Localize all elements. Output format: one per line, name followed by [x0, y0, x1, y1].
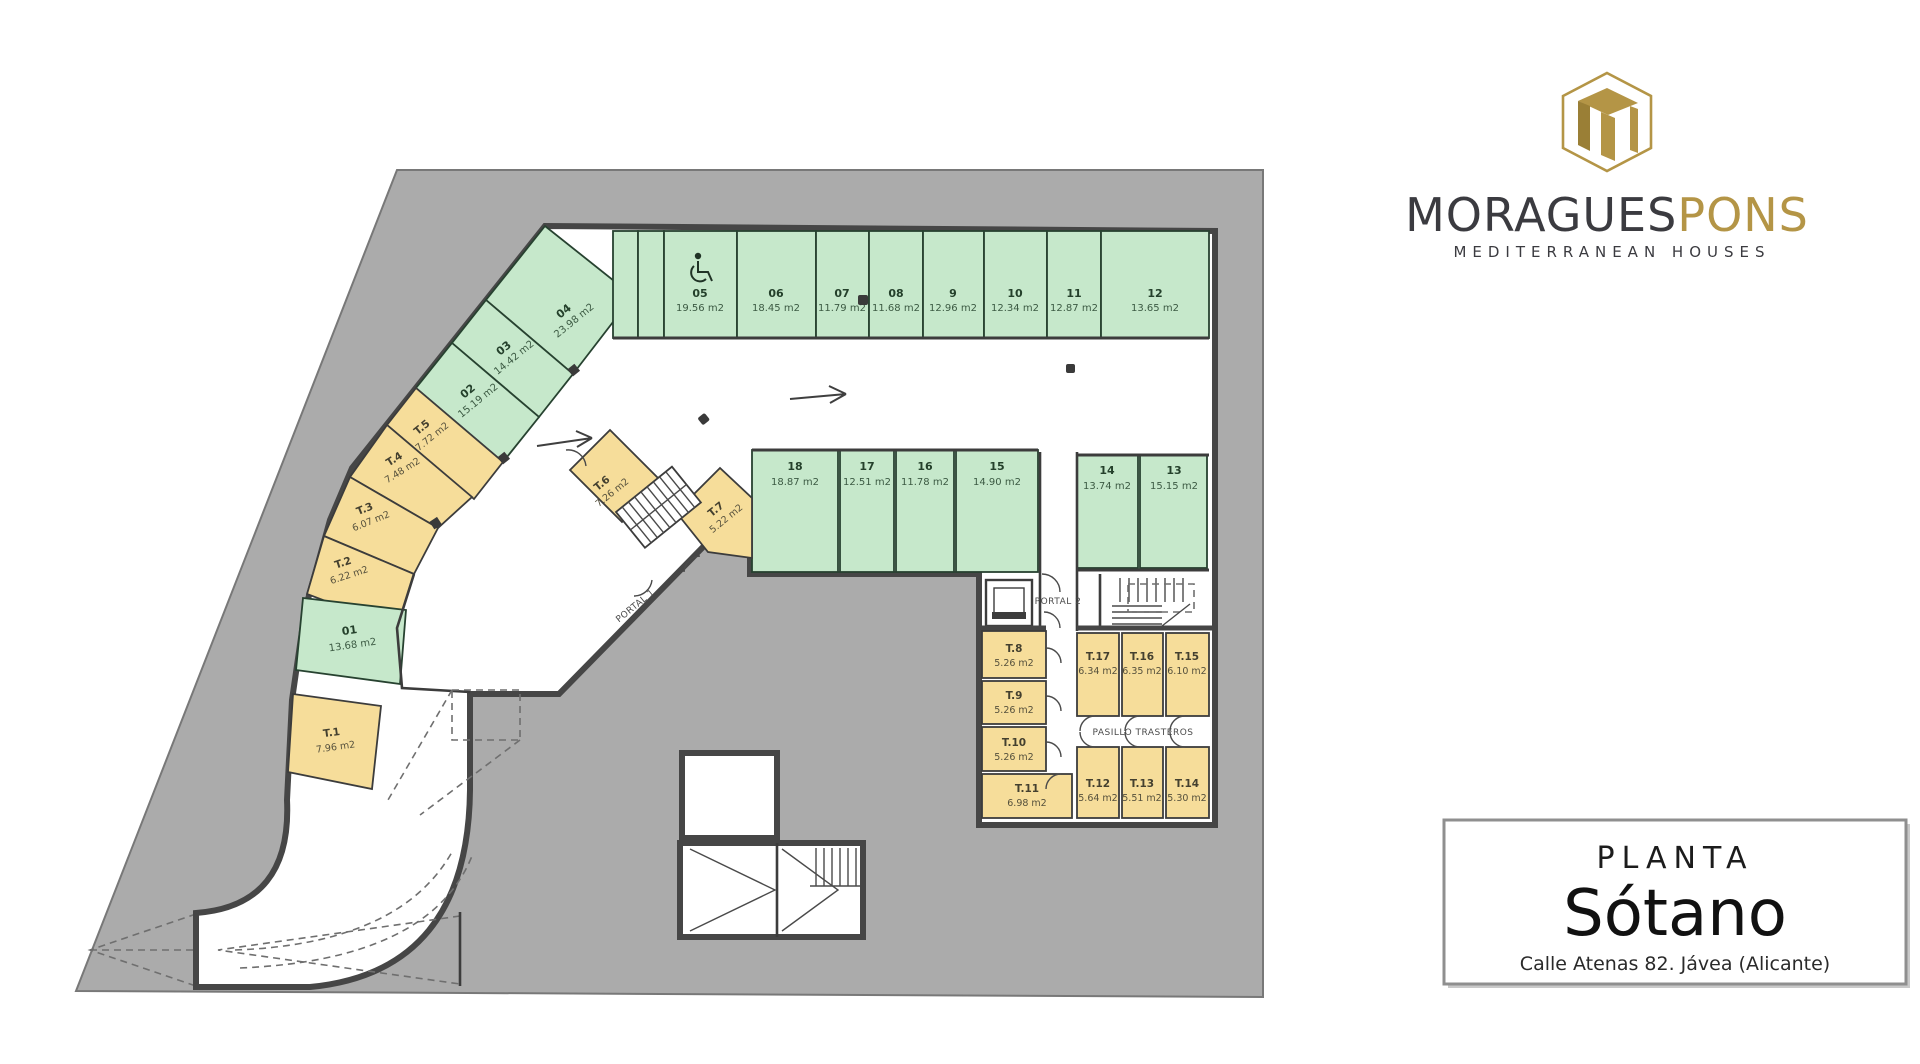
logo-text-gold: PONS	[1677, 188, 1809, 242]
parking-space-13-id: 13	[1166, 464, 1181, 477]
parking-space-05	[664, 231, 737, 338]
brand-logo: MORAGUESPONS MEDITERRANEAN HOUSES	[1405, 73, 1809, 261]
storage-room-t14-id: T.14	[1175, 778, 1199, 790]
parking-space-14-id: 14	[1099, 464, 1115, 477]
parking-space-05-area: 19.56 m2	[676, 303, 724, 314]
logo-mark-leg-left	[1578, 101, 1590, 151]
elevator-door	[992, 612, 1026, 619]
parking-space-06-id: 06	[768, 287, 784, 300]
parking-space-12	[1101, 231, 1209, 338]
parking-space-15-id: 15	[989, 460, 1004, 473]
floor-plan-canvas: 04 23.98 m2 03 14.42 m2 02 15.19 m2 T.5 …	[0, 0, 1920, 1064]
storage-room-t13-area: 5.51 m2	[1122, 793, 1161, 804]
parking-space-17-id: 17	[859, 460, 874, 473]
pasillo-trasteros-label: PASILLO TRASTEROS	[1092, 728, 1193, 738]
parking-space-16-area: 11.78 m2	[901, 477, 949, 488]
parking-space-11	[1047, 231, 1101, 338]
floor-plan-page: 04 23.98 m2 03 14.42 m2 02 15.19 m2 T.5 …	[0, 0, 1920, 1064]
detached-room	[682, 753, 777, 838]
parking-space-16-id: 16	[917, 460, 933, 473]
parking-space-18-id: 18	[787, 460, 802, 473]
logo-mark-leg-mid	[1601, 112, 1615, 161]
parking-space-10	[984, 231, 1047, 338]
parking-space-10-id: 10	[1007, 287, 1023, 300]
logo-tagline: MEDITERRANEAN HOUSES	[1453, 243, 1770, 261]
parking-space-06	[737, 231, 816, 338]
storage-room-t15-id: T.15	[1175, 651, 1199, 663]
parking-space-09	[923, 231, 984, 338]
parking-space-9-area: 12.96 m2	[929, 303, 977, 314]
parking-space-12-area: 13.65 m2	[1131, 303, 1179, 314]
parking-space-06-area: 18.45 m2	[752, 303, 800, 314]
portal-2-label: PORTAL 2	[1035, 597, 1082, 607]
storage-room-t14-area: 5.30 m2	[1167, 793, 1206, 804]
storage-room-t15-area: 6.10 m2	[1167, 666, 1206, 677]
parking-space-07-area: 11.79 m2	[818, 303, 866, 314]
storage-room-t10-id: T.10	[1002, 737, 1026, 749]
parking-stall-unlabeled-a	[613, 231, 638, 338]
floor-name: Sótano	[1563, 877, 1787, 951]
storage-room-t12-id: T.12	[1086, 778, 1110, 790]
parking-space-07	[816, 231, 869, 338]
mid-row-parking: 18 18.87 m2 17 12.51 m2 16 11.78 m2 15 1…	[752, 450, 1207, 572]
storage-room-t11	[982, 774, 1072, 818]
parking-space-18-area: 18.87 m2	[771, 477, 819, 488]
floor-label: PLANTA	[1597, 841, 1754, 876]
storage-room-t10	[982, 727, 1046, 771]
parking-space-08	[869, 231, 923, 338]
storage-room-t8-area: 5.26 m2	[994, 658, 1033, 669]
parking-space-11-id: 11	[1066, 287, 1081, 300]
parking-space-13-area: 15.15 m2	[1150, 481, 1198, 492]
storage-room-t9-area: 5.26 m2	[994, 705, 1033, 716]
parking-space-15-area: 14.90 m2	[973, 477, 1021, 488]
storage-room-t9	[982, 681, 1046, 724]
parking-space-01-id: 01	[341, 623, 358, 638]
storage-room-t16-id: T.16	[1130, 651, 1154, 663]
elevator-shaft	[986, 580, 1032, 626]
parking-space-07-id: 07	[834, 287, 849, 300]
storage-room-t17-id: T.17	[1086, 651, 1110, 663]
storage-room-t12-area: 5.64 m2	[1078, 793, 1117, 804]
logo-wordmark: MORAGUESPONS	[1405, 188, 1809, 242]
parking-space-08-id: 08	[888, 287, 903, 300]
storage-room-t13-id: T.13	[1130, 778, 1154, 790]
parking-space-10-area: 12.34 m2	[991, 303, 1039, 314]
parking-space-08-area: 11.68 m2	[872, 303, 920, 314]
storage-room-t1-id: T.1	[322, 726, 340, 740]
parking-space-14-area: 13.74 m2	[1083, 481, 1131, 492]
parking-space-9-id: 9	[949, 287, 957, 300]
project-address: Calle Atenas 82. Jávea (Alicante)	[1520, 953, 1830, 975]
storage-room-t11-area: 6.98 m2	[1007, 798, 1046, 809]
parking-space-11-area: 12.87 m2	[1050, 303, 1098, 314]
storage-room-t10-area: 5.26 m2	[994, 752, 1033, 763]
storage-room-t11-id: T.11	[1015, 783, 1039, 795]
logo-text-dark: MORAGUES	[1405, 188, 1677, 242]
storage-room-t17-area: 6.34 m2	[1078, 666, 1117, 677]
parking-space-12-id: 12	[1147, 287, 1162, 300]
title-block: PLANTA Sótano Calle Atenas 82. Jávea (Al…	[1444, 820, 1910, 988]
parking-space-17-area: 12.51 m2	[843, 477, 891, 488]
storage-room-t8-id: T.8	[1006, 643, 1023, 655]
top-row-parking: 05 19.56 m2 06 18.45 m2 07 11.79 m2 08 1…	[613, 231, 1209, 338]
storage-room-t9-id: T.9	[1006, 690, 1023, 702]
logo-mark-leg-right	[1630, 106, 1638, 153]
parking-space-05-id: 05	[692, 287, 707, 300]
storage-room-t16-area: 6.35 m2	[1122, 666, 1161, 677]
parking-stall-unlabeled-b	[638, 231, 664, 338]
logo-mark	[1563, 73, 1651, 171]
